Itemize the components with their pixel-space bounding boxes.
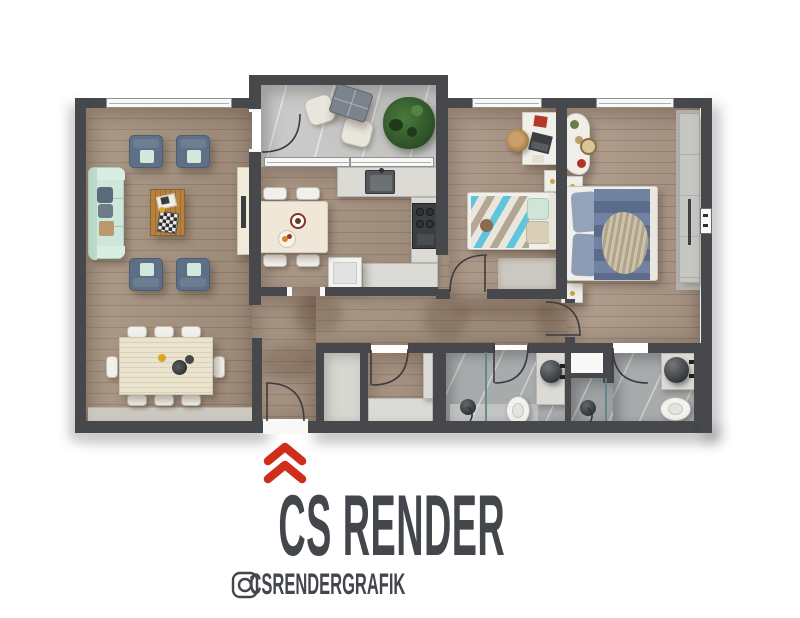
entrance-door-arc bbox=[266, 383, 304, 421]
balcony-door-arc bbox=[262, 114, 300, 152]
instagram-handle: CSRENDERGRAFIK bbox=[233, 568, 405, 602]
floorplan-poster: CS RENDER CSRENDERGRAFIK bbox=[0, 0, 800, 618]
instagram-row: CSRENDERGRAFIK bbox=[0, 568, 778, 602]
bathroom2-door-arc bbox=[613, 348, 648, 383]
studio-name: CS RENDER bbox=[279, 492, 506, 561]
master-door-arc bbox=[546, 302, 580, 336]
logo-block: CS RENDER bbox=[0, 492, 784, 561]
door-arcs bbox=[262, 114, 648, 421]
kids-door-arc bbox=[450, 255, 487, 292]
storage-door-arc bbox=[371, 349, 408, 385]
shower-glass bbox=[486, 352, 606, 421]
bathroom1-door-arc bbox=[494, 345, 528, 383]
